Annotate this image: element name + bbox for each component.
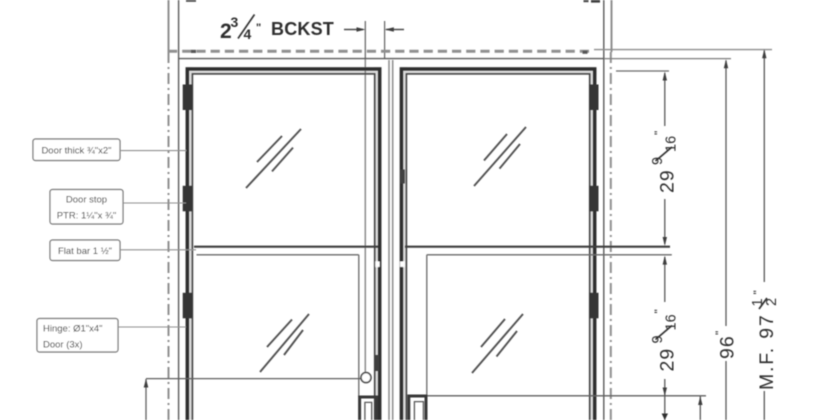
svg-text:16: 16: [664, 136, 680, 152]
svg-text:29: 29: [657, 169, 679, 193]
svg-text:Hinge: Ø1"x4": Hinge: Ø1"x4": [43, 324, 103, 335]
svg-text:3: 3: [231, 14, 239, 30]
svg-text:96: 96: [717, 335, 739, 359]
svg-text:Door (3x): Door (3x): [43, 340, 83, 351]
svg-text:": ": [713, 331, 727, 335]
svg-text:Flat bar 1 ½": Flat bar 1 ½": [58, 246, 112, 257]
svg-text:BCKST: BCKST: [271, 19, 334, 39]
svg-text:4: 4: [244, 26, 252, 42]
svg-text:": ": [256, 22, 261, 34]
svg-text:": ": [652, 131, 666, 135]
svg-text:16: 16: [664, 314, 680, 330]
svg-text:Door thick ¾"x2": Door thick ¾"x2": [41, 146, 111, 157]
svg-text:2: 2: [764, 298, 780, 306]
svg-text:29: 29: [657, 348, 679, 372]
svg-text:PTR: 1¼"x ¾": PTR: 1¼"x ¾": [57, 211, 117, 222]
svg-text:": ": [652, 309, 666, 313]
svg-text:": ": [751, 290, 765, 294]
svg-text:Door stop: Door stop: [66, 195, 107, 206]
svg-text:M.F. 97: M.F. 97: [756, 313, 778, 390]
